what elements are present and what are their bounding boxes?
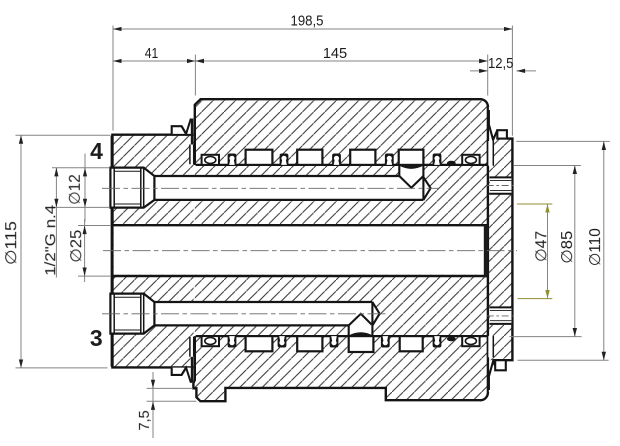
svg-text:∅12: ∅12 (67, 174, 84, 205)
svg-text:7,5: 7,5 (137, 410, 153, 430)
svg-text:145: 145 (323, 46, 347, 62)
svg-text:1/2"G n.4: 1/2"G n.4 (43, 205, 59, 276)
svg-text:198,5: 198,5 (291, 14, 324, 30)
svg-text:3: 3 (90, 325, 103, 351)
svg-text:12,5: 12,5 (488, 56, 514, 72)
svg-text:4: 4 (90, 138, 103, 164)
svg-text:∅115: ∅115 (3, 221, 20, 265)
svg-text:∅25: ∅25 (68, 230, 85, 263)
svg-text:∅85: ∅85 (559, 231, 576, 264)
svg-text:41: 41 (145, 46, 159, 62)
svg-text:∅110: ∅110 (587, 228, 604, 266)
svg-text:∅47: ∅47 (533, 231, 550, 262)
